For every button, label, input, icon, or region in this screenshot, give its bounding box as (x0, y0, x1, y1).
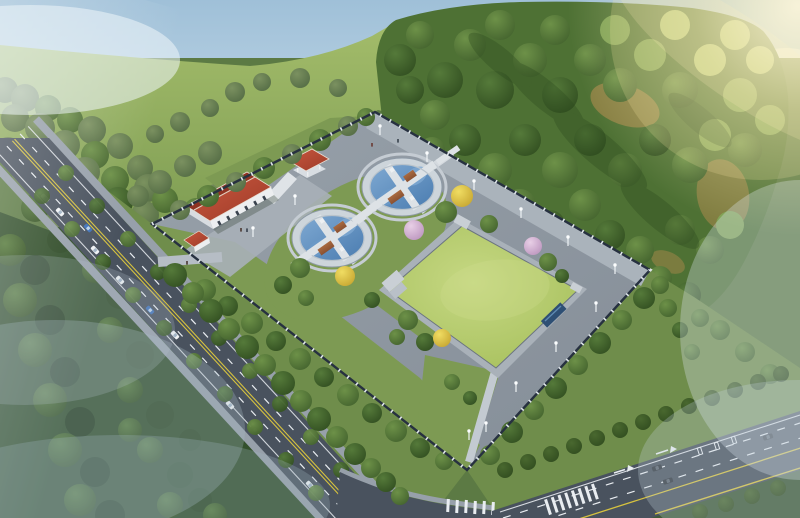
scene-canvas (0, 0, 800, 518)
aerial-rendering (0, 0, 800, 518)
blossom-tree (404, 220, 424, 240)
yellow-tree (433, 329, 451, 347)
yellow-tree (451, 185, 473, 207)
entrance-drive (158, 257, 222, 262)
blossom-tree (524, 237, 542, 255)
yellow-tree (335, 266, 355, 286)
